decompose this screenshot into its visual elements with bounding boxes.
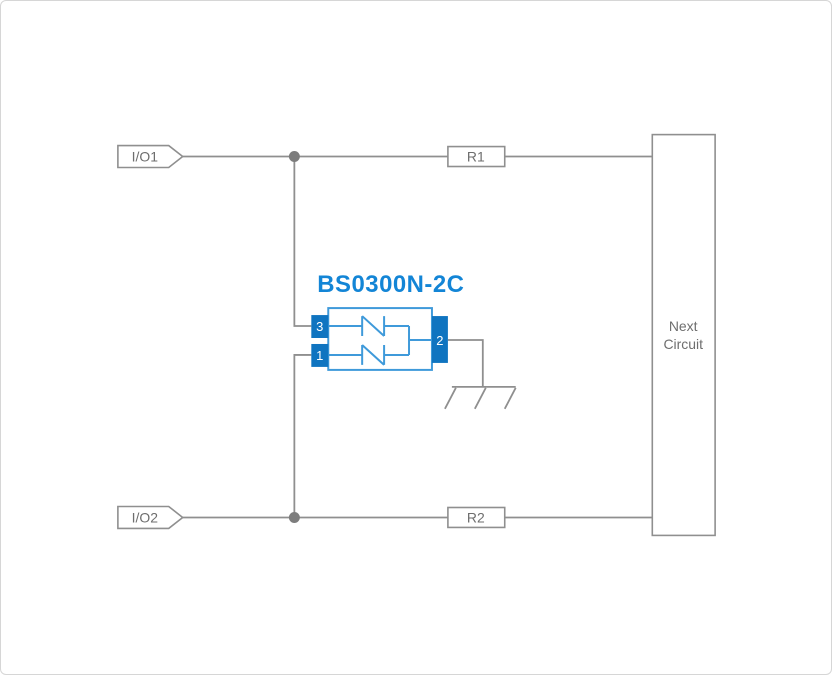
wire-pin2-to-ground xyxy=(448,340,483,387)
component-title: BS0300N-2C xyxy=(317,271,464,298)
resistor-r1: R1 xyxy=(448,147,505,167)
pin-2: 2 xyxy=(432,316,448,363)
pin-3: 3 xyxy=(311,315,328,338)
schematic-layer: I/O1 I/O2 R1 R2 Next Circuit BS0300N-2C xyxy=(1,1,831,674)
junction-dot-top xyxy=(289,151,300,162)
pin-1: 1 xyxy=(311,344,328,367)
next-circuit-label-line1: Next xyxy=(669,318,698,334)
tvs-component: 3 1 2 xyxy=(311,308,448,370)
resistor-r2-label: R2 xyxy=(467,509,485,525)
ground-hatches xyxy=(445,388,516,409)
io1-tag: I/O1 xyxy=(118,146,183,168)
resistor-r1-label: R1 xyxy=(467,149,485,165)
wire-pin1-to-junction xyxy=(294,355,311,518)
io2-tag: I/O2 xyxy=(118,506,183,528)
pin-2-label: 2 xyxy=(436,333,443,348)
next-circuit-block: Next Circuit xyxy=(652,135,715,536)
chassis-ground-icon xyxy=(445,387,516,409)
circuit-diagram: I/O1 I/O2 R1 R2 Next Circuit BS0300N-2C xyxy=(0,0,832,675)
junction-dot-bottom xyxy=(289,512,300,523)
pin-1-label: 1 xyxy=(316,348,323,363)
wire-junction-to-pin3 xyxy=(294,157,311,326)
next-circuit-label-line2: Circuit xyxy=(663,336,703,352)
pin-3-label: 3 xyxy=(316,319,323,334)
io1-tag-label: I/O1 xyxy=(132,149,159,165)
io2-tag-label: I/O2 xyxy=(132,509,159,525)
resistor-r2: R2 xyxy=(448,507,505,527)
